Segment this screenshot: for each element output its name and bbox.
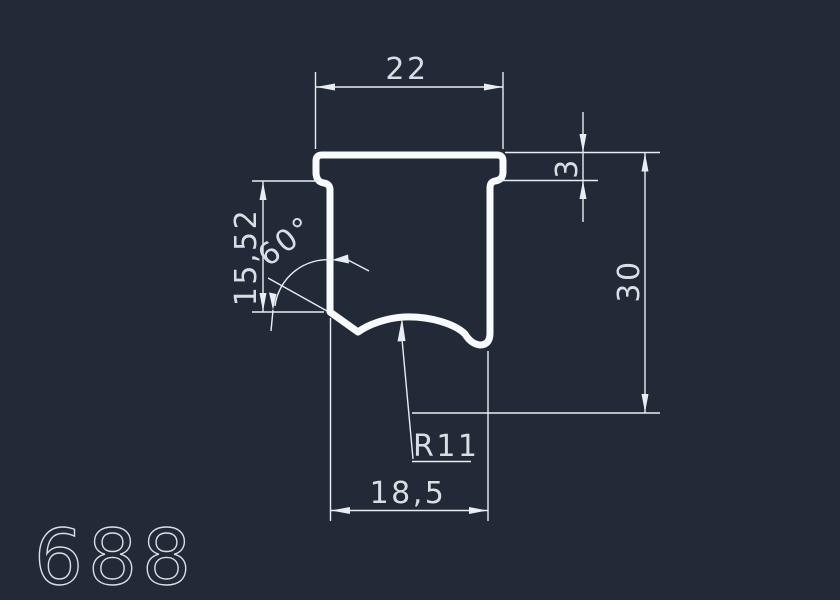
arrow-right-icon [484,84,503,91]
dim-top-width-label: 22 [385,52,428,87]
arrow-down-icon [642,394,649,413]
leader-arrow-icon [398,318,406,342]
dim-angle: 60° [251,209,369,331]
profile-outline [316,155,503,345]
arrow-up-icon [580,181,587,200]
dim-radius-label: R11 [413,429,480,464]
dim-total-height: 30 [412,153,660,414]
part-number-label: 688 [34,514,196,600]
dim-radius-leader [402,339,413,459]
dim-top-width: 22 [316,52,504,149]
dim-lip-thickness: 3 [497,112,660,222]
cad-drawing: 22 3 30 15,52 [0,0,840,600]
dim-height-label: 30 [612,259,647,302]
dim-angle-tail-bottom [271,310,273,331]
arrow-right-icon [469,507,488,514]
dim-angle-ext-line [268,278,327,311]
dim-angle-arc [275,260,333,306]
arrow-left-icon [331,507,350,514]
arrow-up-icon [260,182,267,201]
cad-drawing-canvas: 22 3 30 15,52 [0,0,840,600]
arrow-up-icon [642,153,649,172]
arrow-left-icon [316,84,335,91]
dim-bottom-label: 18,5 [370,476,447,511]
dim-lip-label: 3 [550,157,585,179]
arrow-down-icon [580,134,587,153]
dim-angle-tail-top [346,259,369,271]
